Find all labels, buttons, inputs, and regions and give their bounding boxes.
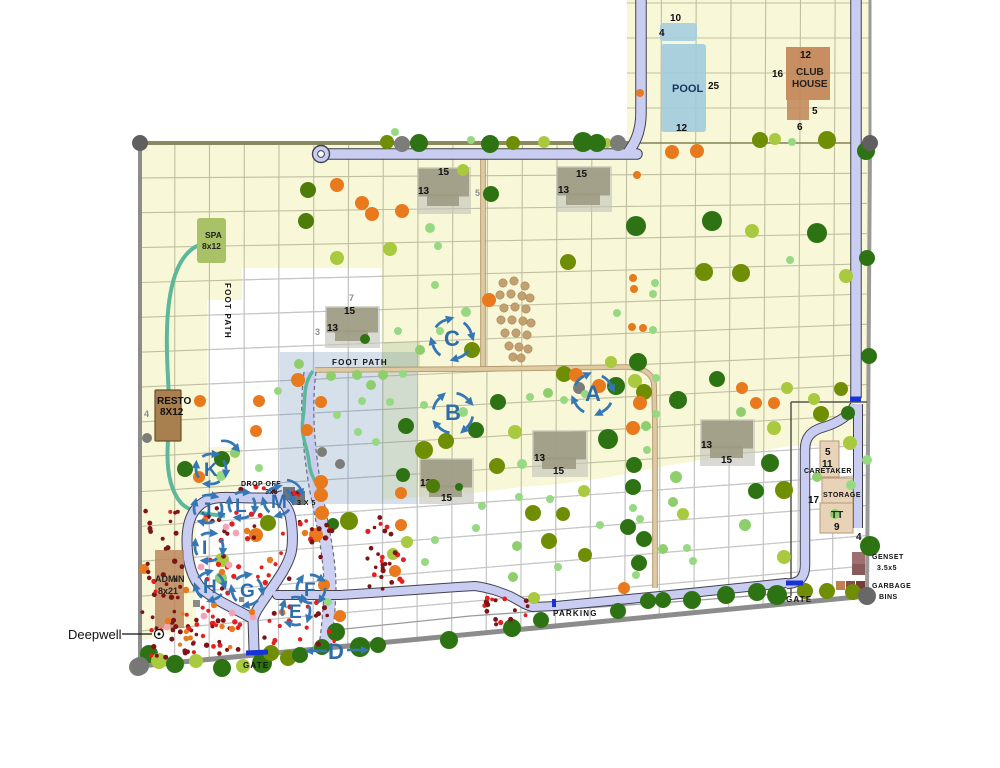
svg-text:G: G bbox=[240, 581, 255, 602]
svg-text:15: 15 bbox=[344, 306, 356, 317]
svg-text:8X12: 8X12 bbox=[160, 407, 184, 418]
svg-text:CLUB: CLUB bbox=[796, 67, 824, 78]
svg-text:8x12: 8x12 bbox=[202, 241, 221, 251]
svg-text:I: I bbox=[202, 538, 207, 559]
svg-text:10: 10 bbox=[670, 13, 682, 24]
svg-text:FOOT PATH: FOOT PATH bbox=[223, 283, 232, 339]
svg-text:L: L bbox=[235, 496, 247, 517]
svg-text:E: E bbox=[289, 602, 302, 623]
svg-text:RESTO: RESTO bbox=[157, 396, 191, 407]
svg-text:13: 13 bbox=[701, 440, 713, 451]
svg-text:FOOT PATH: FOOT PATH bbox=[332, 358, 388, 367]
svg-text:B: B bbox=[445, 400, 461, 425]
svg-text:6: 6 bbox=[797, 122, 803, 133]
svg-text:5: 5 bbox=[825, 447, 831, 458]
svg-text:GARBAGE: GARBAGE bbox=[872, 583, 911, 590]
svg-text:J: J bbox=[201, 500, 212, 521]
svg-text:5: 5 bbox=[475, 188, 480, 198]
svg-text:4: 4 bbox=[659, 28, 665, 39]
svg-text:13: 13 bbox=[327, 323, 339, 334]
svg-text:4: 4 bbox=[856, 532, 862, 543]
svg-text:TT: TT bbox=[831, 510, 843, 521]
svg-text:BINS: BINS bbox=[879, 594, 898, 601]
svg-text:PARKING: PARKING bbox=[553, 609, 598, 618]
svg-text:7: 7 bbox=[349, 293, 354, 303]
svg-text:12: 12 bbox=[676, 123, 688, 134]
svg-text:5: 5 bbox=[812, 106, 818, 117]
svg-text:15: 15 bbox=[438, 167, 450, 178]
svg-text:GATE: GATE bbox=[786, 595, 812, 604]
svg-text:D: D bbox=[328, 639, 344, 664]
svg-text:3.5x5: 3.5x5 bbox=[877, 565, 897, 572]
svg-text:GENSET: GENSET bbox=[872, 554, 904, 561]
svg-text:A: A bbox=[585, 381, 601, 406]
svg-text:3 X 5: 3 X 5 bbox=[297, 500, 316, 507]
svg-text:ADMIN: ADMIN bbox=[155, 574, 185, 584]
svg-text:15: 15 bbox=[576, 169, 588, 180]
svg-text:13: 13 bbox=[558, 185, 570, 196]
svg-text:15: 15 bbox=[721, 455, 733, 466]
svg-text:K: K bbox=[204, 460, 218, 481]
svg-text:STORAGE: STORAGE bbox=[823, 492, 861, 499]
svg-text:POOL: POOL bbox=[672, 83, 703, 95]
svg-text:3: 3 bbox=[315, 327, 320, 337]
svg-text:16: 16 bbox=[772, 69, 784, 80]
svg-text:15: 15 bbox=[441, 493, 453, 504]
svg-text:9: 9 bbox=[834, 522, 840, 533]
svg-text:C: C bbox=[444, 326, 460, 351]
svg-text:SPA: SPA bbox=[205, 230, 222, 240]
svg-text:25: 25 bbox=[708, 81, 720, 92]
svg-text:4: 4 bbox=[144, 409, 149, 419]
svg-text:17: 17 bbox=[808, 495, 820, 506]
svg-text:F: F bbox=[304, 580, 316, 601]
svg-text:M: M bbox=[271, 492, 287, 513]
svg-text:HOUSE: HOUSE bbox=[792, 79, 828, 90]
svg-text:13: 13 bbox=[418, 186, 430, 197]
svg-text:H: H bbox=[203, 577, 217, 598]
svg-text:8x21: 8x21 bbox=[158, 586, 178, 596]
svg-text:12: 12 bbox=[800, 50, 812, 61]
svg-text:13: 13 bbox=[534, 453, 546, 464]
svg-text:15: 15 bbox=[553, 466, 565, 477]
svg-text:GATE: GATE bbox=[243, 661, 269, 670]
svg-text:Deepwell: Deepwell bbox=[68, 627, 122, 642]
svg-text:CARETAKER: CARETAKER bbox=[804, 468, 852, 475]
